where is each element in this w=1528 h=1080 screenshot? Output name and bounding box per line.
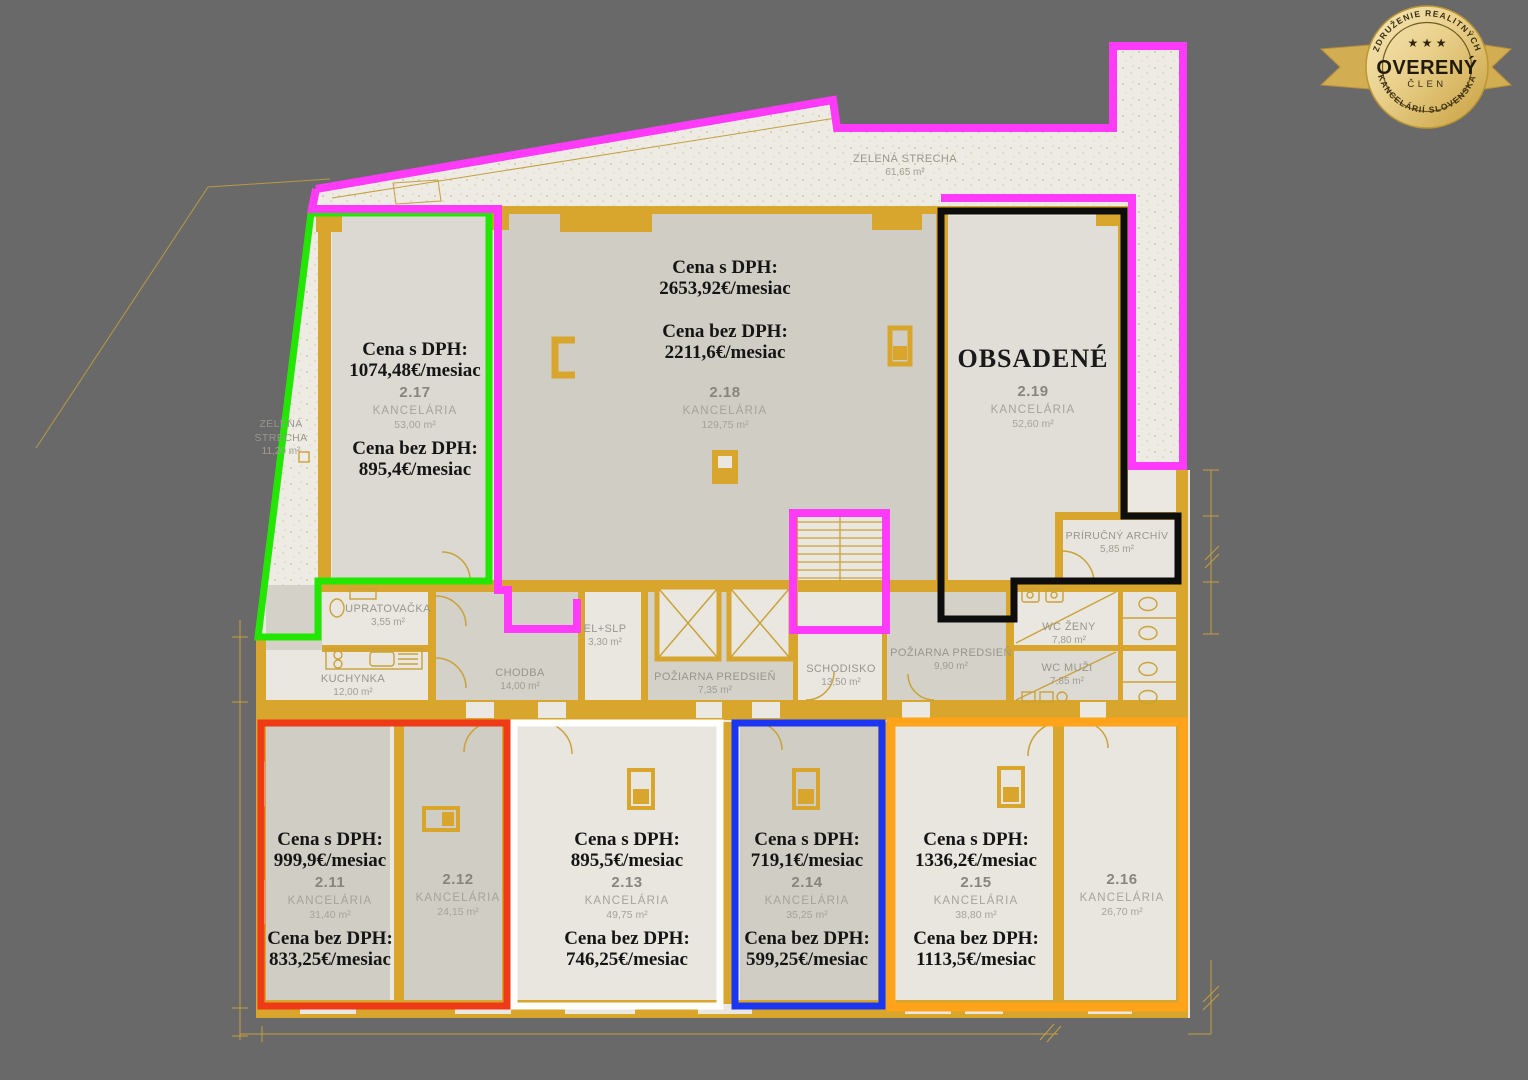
price-without-vat-value: 1113,5€/mesiac [856, 949, 1096, 970]
room-name: PRÍRUČNÝ ARCHÍV [1066, 529, 1169, 543]
room-wc-muzi: WC MUŽI 7,85 m² [1041, 661, 1092, 688]
unit-area: 52,60 m² [913, 418, 1153, 431]
room-name: CHODBA [495, 666, 544, 680]
room-name: SCHODISKO [806, 662, 876, 676]
unit-217-info: Cena s DPH: 1074,48€/mesiac 2.17 KANCELÁ… [295, 339, 535, 480]
badge-title: OVERENÝ [1376, 55, 1477, 79]
unit-number: 2.19 [913, 382, 1153, 401]
price-with-vat-label: Cena s DPH: [856, 829, 1096, 850]
unit-number: 2.17 [295, 383, 535, 402]
room-area: 3,30 m² [583, 636, 626, 649]
unit-area: 129,75 m² [605, 419, 845, 432]
room-area: 7,80 m² [1042, 634, 1096, 647]
room-name: POŽIARNA PREDSIEŇ [654, 670, 776, 684]
room-type: KANCELÁRIA [295, 404, 535, 419]
badge-stars: ★ ★ ★ [1408, 36, 1447, 50]
badge-subtitle: ČLEN [1407, 79, 1446, 90]
badge-ribbon-right [1485, 45, 1511, 89]
price-without-vat-label: Cena bez DPH: [295, 438, 535, 459]
price-without-vat-label: Cena bez DPH: [856, 928, 1096, 949]
room-wc-zeny: WC ŽENY 7,80 m² [1042, 620, 1096, 647]
price-without-vat-value: 833,25€/mesiac [210, 949, 450, 970]
room-area: 7,35 m² [654, 684, 776, 697]
room-name: EL+SLP [583, 622, 626, 636]
room-name: WC ŽENY [1042, 620, 1096, 634]
room-area: 9,90 m² [890, 660, 1012, 673]
unit-number: 2.16 [1002, 870, 1242, 889]
room-upratovacka: UPRATOVAČKA 3,55 m² [345, 602, 431, 629]
room-chodba: CHODBA 14,00 m² [495, 666, 544, 693]
price-without-vat-label: Cena bez DPH: [605, 321, 845, 342]
badge-ribbon-left [1321, 45, 1369, 89]
room-area: 7,85 m² [1041, 675, 1092, 688]
price-with-vat-value: 2653,92€/mesiac [605, 278, 845, 299]
room-poziarna-predsien-2: POŽIARNA PREDSIEŇ 9,90 m² [890, 646, 1012, 673]
price-with-vat-value: 1074,48€/mesiac [295, 360, 535, 381]
price-with-vat-label: Cena s DPH: [210, 829, 450, 850]
roof-top-name: ZELENÁ STRECHA [853, 152, 957, 166]
price-with-vat-label: Cena s DPH: [295, 339, 535, 360]
occupied-status: OBSADENÉ [913, 344, 1153, 374]
unit-area: 26,70 m² [1002, 906, 1242, 919]
price-with-vat-label: Cena s DPH: [605, 257, 845, 278]
room-schodisko: SCHODISKO 13,50 m² [806, 662, 876, 689]
room-type: KANCELÁRIA [605, 404, 845, 419]
room-type: KANCELÁRIA [1002, 891, 1242, 906]
roof-top-label: ZELENÁ STRECHA 61,65 m² [853, 152, 957, 179]
room-name: WC MUŽI [1041, 661, 1092, 675]
room-area: 5,85 m² [1066, 543, 1169, 556]
room-area: 13,50 m² [806, 676, 876, 689]
unit-216-info: 2.16 KANCELÁRIA 26,70 m² [1002, 868, 1242, 919]
unit-218-info: Cena s DPH: 2653,92€/mesiac Cena bez DPH… [605, 257, 845, 432]
room-area: 3,55 m² [345, 616, 431, 629]
unit-area: 53,00 m² [295, 419, 535, 432]
room-prirucny-archiv: PRÍRUČNÝ ARCHÍV 5,85 m² [1066, 529, 1169, 556]
roof-top-area: 61,65 m² [853, 166, 957, 179]
verified-badge: ZDRUŽENIE REALITNÝCH KANCELÁRIÍ SLOVENSK… [1321, 6, 1511, 128]
room-name: POŽIARNA PREDSIEŇ [890, 646, 1012, 660]
floorplan-page: ZDRUŽENIE REALITNÝCH KANCELÁRIÍ SLOVENSK… [0, 0, 1528, 1080]
price-without-vat-label: Cena bez DPH: [210, 928, 450, 949]
price-without-vat-value: 895,4€/mesiac [295, 459, 535, 480]
price-without-vat-value: 2211,6€/mesiac [605, 342, 845, 363]
room-name: UPRATOVAČKA [345, 602, 431, 616]
room-area: 14,00 m² [495, 680, 544, 693]
room-name: KUCHYNKA [321, 672, 385, 686]
room-area: 12,00 m² [321, 686, 385, 699]
room-el-slp: EL+SLP 3,30 m² [583, 622, 626, 649]
room-type: KANCELÁRIA [913, 403, 1153, 418]
unit-number: 2.18 [605, 383, 845, 402]
room-poziarna-predsien-1: POŽIARNA PREDSIEŇ 7,35 m² [654, 670, 776, 697]
unit-219-info: OBSADENÉ 2.19 KANCELÁRIA 52,60 m² [913, 344, 1153, 431]
room-kuchynka: KUCHYNKA 12,00 m² [321, 672, 385, 699]
